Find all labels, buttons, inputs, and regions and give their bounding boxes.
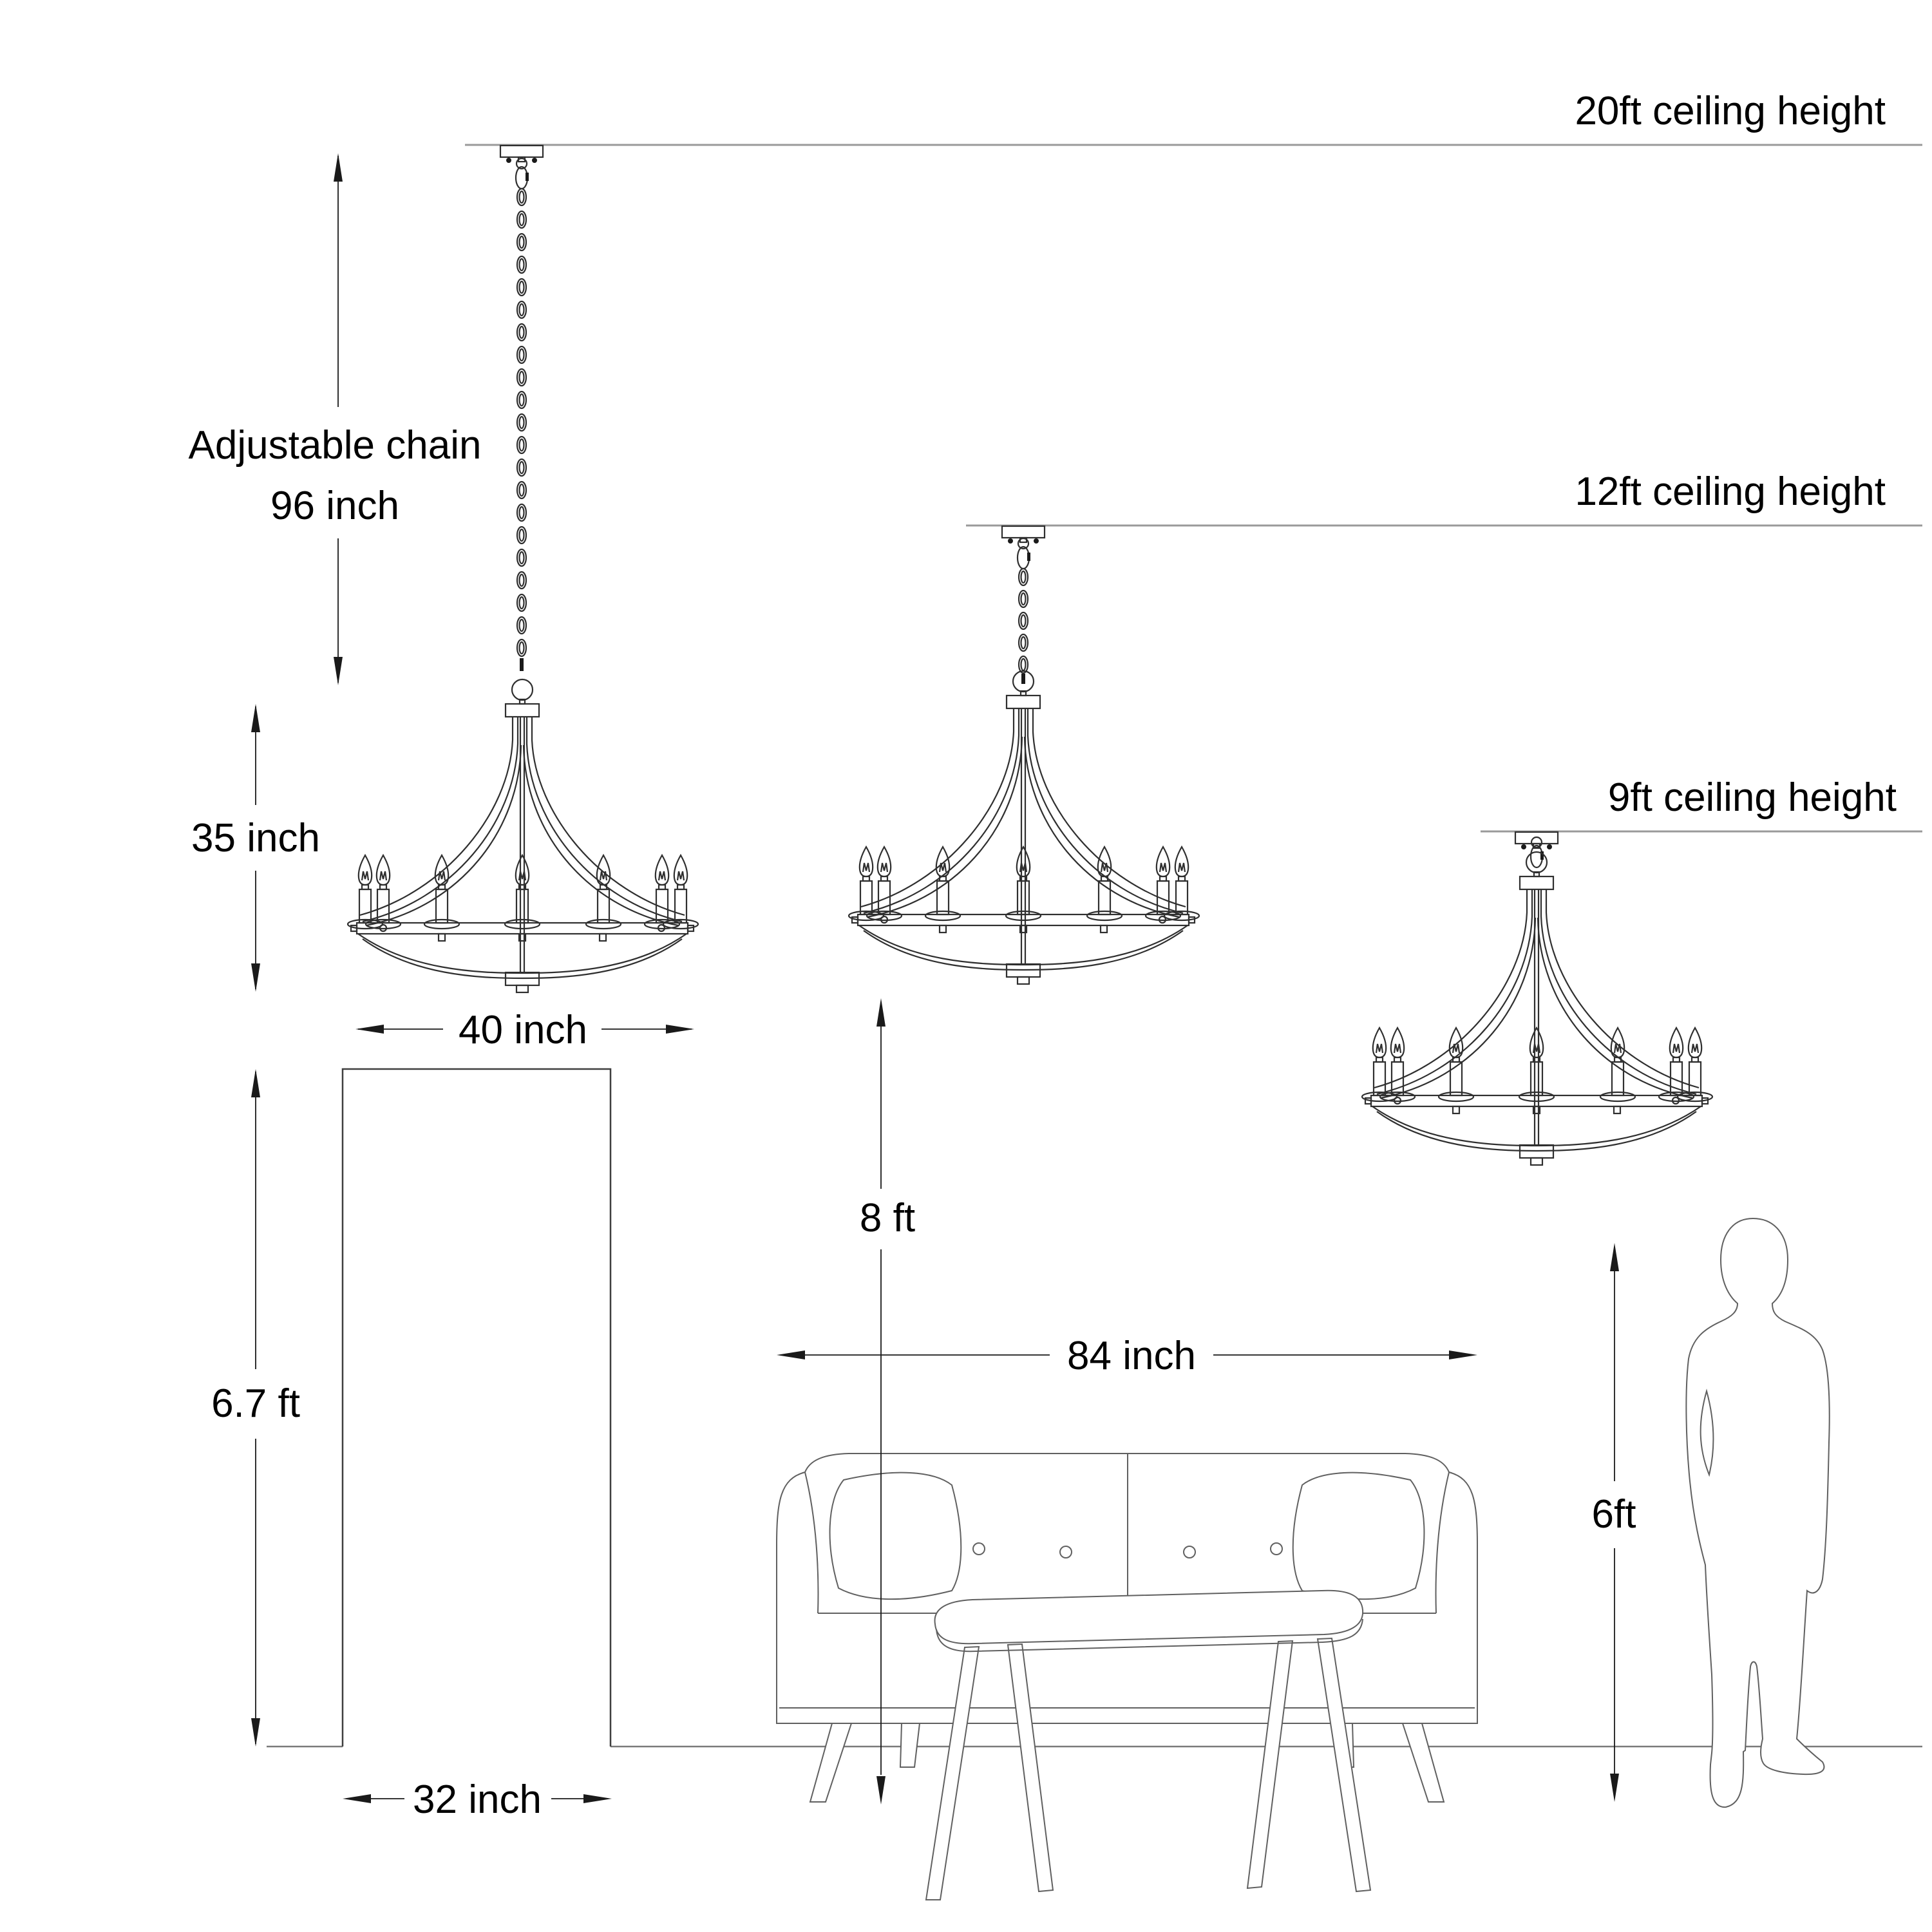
- fixture-width-label: 40 inch: [459, 1008, 587, 1052]
- door-height-label: 6.7 ft: [211, 1381, 300, 1426]
- door-width-label: 32 inch: [413, 1777, 542, 1822]
- person-height-label: 6ft: [1592, 1492, 1636, 1537]
- ceiling-12ft-label: 12ft ceiling height: [1575, 469, 1886, 514]
- ceiling-20ft-label: 20ft ceiling height: [1575, 89, 1886, 133]
- fixture-height-label: 35 inch: [191, 816, 320, 860]
- clearance-label: 8 ft: [860, 1196, 915, 1240]
- chain-label-line2: 96 inch: [270, 484, 399, 528]
- chain-label-line1: Adjustable chain: [189, 423, 482, 468]
- ceiling-9ft-label: 9ft ceiling height: [1608, 775, 1897, 820]
- chandelier-size-diagram: Adjustable chain 96 inch 35 inch 40 inch…: [0, 0, 1932, 1932]
- sofa-width-label: 84 inch: [1067, 1334, 1196, 1378]
